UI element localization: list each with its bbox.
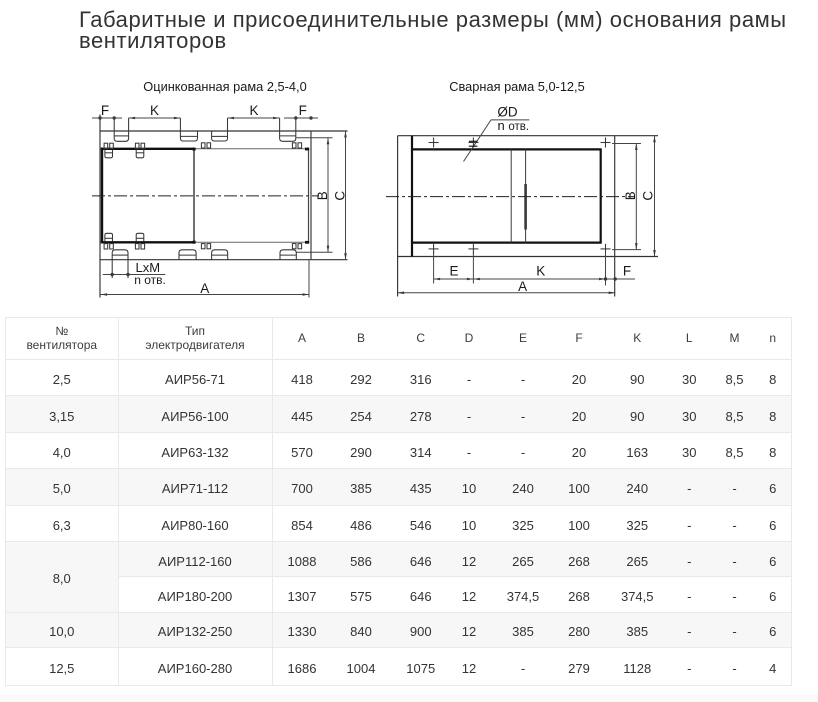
svg-text:Оцинкованная рама 2,5-4,0: Оцинкованная рама 2,5-4,0 [143,79,306,94]
svg-text:A: A [200,281,209,296]
svg-text:C: C [332,191,347,201]
svg-text:E: E [449,264,458,279]
svg-text:F: F [101,103,109,118]
svg-text:F: F [299,103,307,118]
svg-text:Сварная рама 5,0-12,5: Сварная рама 5,0-12,5 [449,79,584,94]
svg-text:C: C [640,191,655,201]
svg-text:A: A [518,279,527,294]
svg-text:F: F [623,264,631,279]
svg-text:K: K [249,103,258,118]
svg-text:K: K [150,103,159,118]
svg-text:B: B [315,191,330,200]
svg-text:n отв.: n отв. [134,273,166,287]
svg-text:K: K [536,264,545,279]
svg-text:B: B [623,191,638,200]
svg-text:n отв.: n отв. [498,118,530,133]
